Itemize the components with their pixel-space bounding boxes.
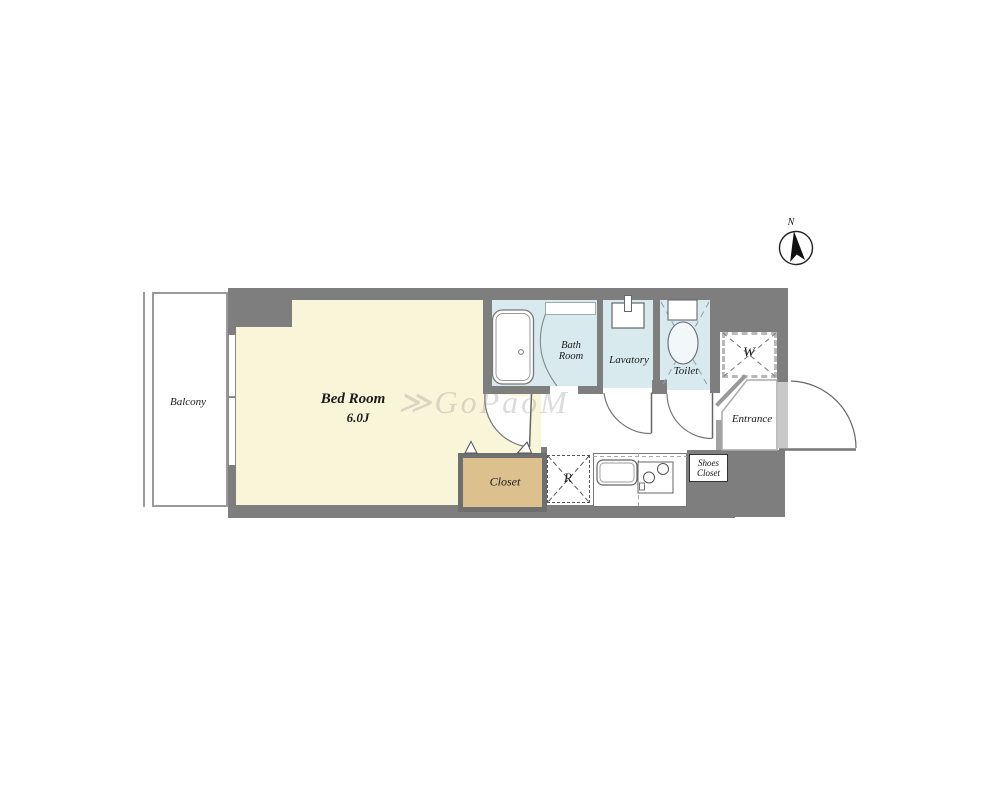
wall-segment xyxy=(716,420,722,450)
wall-segment xyxy=(597,300,603,393)
bathroom-label-line1: Bath xyxy=(559,340,584,351)
bedroom-label: Bed Room xyxy=(321,392,386,408)
shoes-closet-label-box: Shoes Closet xyxy=(689,454,728,482)
watermark: ≫GoPaoM xyxy=(398,383,570,421)
lavatory-label: Lavatory xyxy=(609,355,649,367)
room-lavatory xyxy=(603,300,653,388)
refrigerator-label: R xyxy=(564,471,572,485)
shoes-closet-label-line1: Shoes xyxy=(690,458,727,468)
balcony-label: Balcony xyxy=(170,397,206,409)
toilet-label: Toilet xyxy=(674,366,699,378)
wall-segment xyxy=(228,288,788,300)
wall-segment xyxy=(777,300,788,382)
wall-segment xyxy=(483,300,492,394)
bathroom-label-line2: Room xyxy=(559,351,584,362)
balcony-outer-edge-line xyxy=(143,292,145,507)
bedroom-window xyxy=(228,335,236,465)
north-arrow-icon xyxy=(778,229,815,266)
shoes-closet-label-line2: Closet xyxy=(690,468,727,478)
bedroom-size-label: 6.0J xyxy=(347,411,370,425)
wall-segment xyxy=(652,380,667,394)
compass-north-label: N xyxy=(788,218,795,229)
bathroom-counter-notch xyxy=(545,302,596,315)
wall-segment xyxy=(710,300,720,393)
closet-label: Closet xyxy=(490,476,521,489)
washer-label: W xyxy=(743,347,755,362)
floor-plan: Balcony Bed Room 6.0J Bath Room Lavatory… xyxy=(0,0,999,801)
bathroom-label: Bath Room xyxy=(559,340,584,362)
window-sash-tick xyxy=(228,396,236,398)
kitchen-counter xyxy=(593,453,687,507)
entrance-label: Entrance xyxy=(732,414,772,426)
entrance-threshold xyxy=(778,382,788,448)
wall-segment xyxy=(228,465,236,508)
wall-segment xyxy=(228,288,292,327)
toilet-door xyxy=(667,393,713,439)
wall-segment xyxy=(228,300,236,335)
entrance-door xyxy=(779,381,856,450)
lavatory-door xyxy=(604,393,652,434)
